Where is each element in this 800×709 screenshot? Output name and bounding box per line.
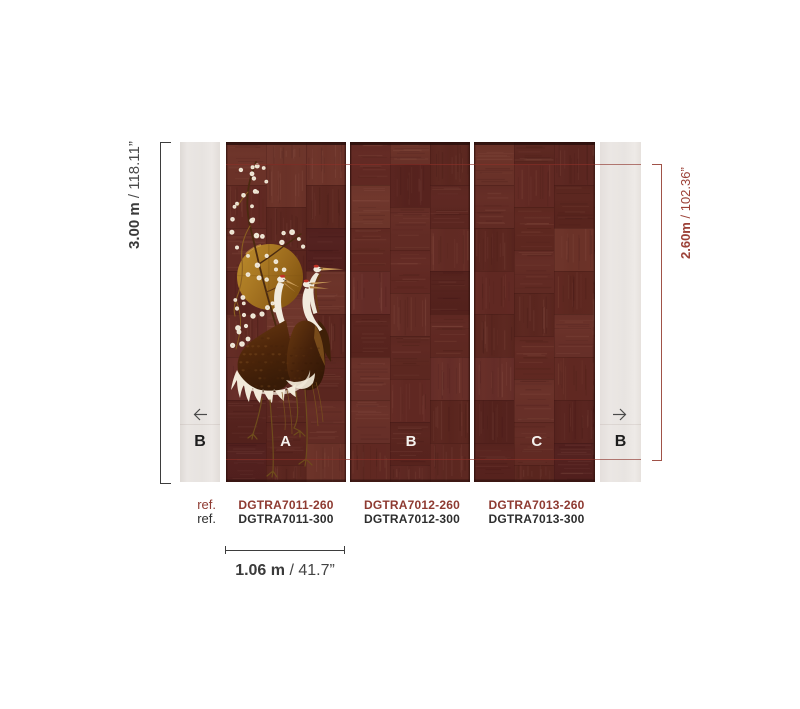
svg-text:C: C (531, 433, 542, 450)
svg-text:B: B (406, 433, 417, 450)
svg-text:A: A (280, 433, 291, 450)
